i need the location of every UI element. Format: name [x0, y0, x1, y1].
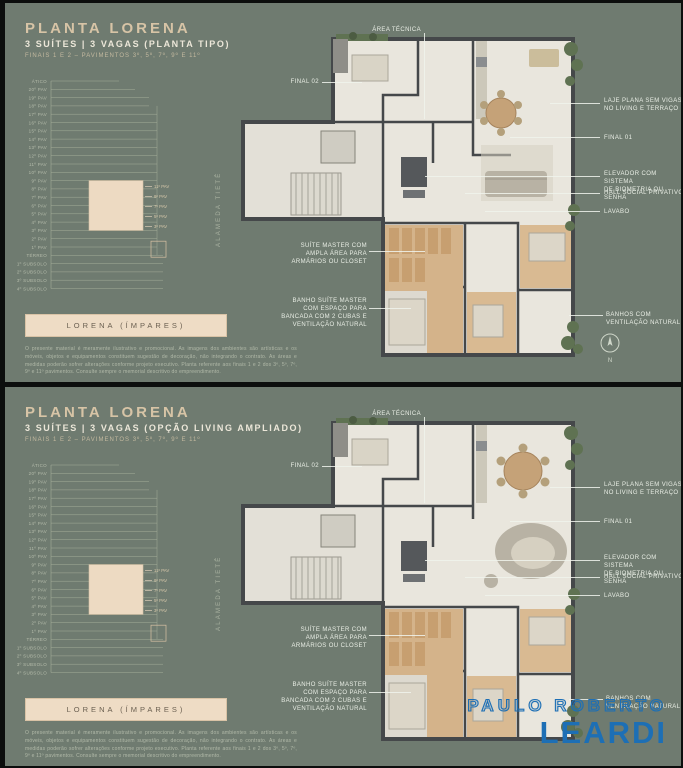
svg-text:16º PAV: 16º PAV [29, 504, 47, 509]
leader-final-02 [322, 82, 362, 83]
bed-master [389, 299, 425, 345]
svg-text:1º PAV: 1º PAV [31, 245, 47, 250]
svg-text:15º PAV: 15º PAV [29, 129, 47, 134]
svg-text:3º SUBSOLO: 3º SUBSOLO [17, 278, 47, 283]
svg-text:11º PAV: 11º PAV [154, 568, 169, 573]
svg-text:17º PAV: 17º PAV [29, 496, 47, 501]
svg-text:18º PAV: 18º PAV [29, 104, 47, 109]
svg-text:13º PAV: 13º PAV [29, 145, 47, 150]
callout-area-tecnica: ÁREA TÉCNICA [335, 26, 421, 34]
leader-laje [550, 103, 600, 104]
leader-final-02 [322, 466, 362, 467]
logo-line-leardi: LEARDI [467, 717, 667, 748]
svg-text:11º PAV: 11º PAV [29, 162, 47, 167]
elevator-shaft-common [321, 515, 355, 547]
kitchen-counter [476, 425, 487, 503]
callout-hall-social: HALL SOCIAL PRIVATIVO [604, 573, 683, 581]
callout-banhos-ventilacao: BANHOS COM VENTILAÇÃO NATURAL [606, 311, 683, 327]
leader-final-01 [510, 521, 600, 522]
svg-text:2º PAV: 2º PAV [31, 237, 47, 242]
svg-text:4º PAV: 4º PAV [31, 604, 47, 609]
logo-line-paulo-roberto: PAULO ROBERTO [467, 697, 667, 714]
bed-suite-3 [529, 617, 565, 645]
callout-lavabo: LAVABO [604, 592, 664, 600]
svg-text:ÁTICO: ÁTICO [32, 78, 47, 84]
leader-hall [465, 577, 600, 578]
svg-text:7º PAV: 7º PAV [31, 579, 47, 584]
leardi-logo: PAULO ROBERTO LEARDI [467, 697, 667, 748]
building-stack-diagram: ÁTICO20º PAV19º PAV18º PAV17º PAV16º PAV… [11, 459, 173, 687]
svg-text:5º PAV: 5º PAV [154, 214, 167, 219]
svg-text:9º PAV: 9º PAV [31, 178, 47, 183]
callout-banho-master: BANHO SUÍTE MASTER COM ESPAÇO PARA BANCA… [243, 681, 367, 713]
callout-elevador: ELEVADOR COM SISTEMA DE BIOMETRIA OU SEN… [604, 170, 683, 202]
svg-text:4º SUBSOLO: 4º SUBSOLO [17, 670, 47, 675]
leader-lavabo [485, 211, 600, 212]
svg-text:ÁTICO: ÁTICO [32, 462, 47, 468]
svg-text:3º PAV: 3º PAV [154, 224, 167, 229]
panel-planta-tipo: PLANTA LORENA 3 SUÍTES | 3 VAGAS (PLANTA… [0, 0, 683, 384]
leader-banho-master [369, 308, 411, 309]
svg-text:3º PAV: 3º PAV [154, 608, 167, 613]
svg-text:2º SUBSOLO: 2º SUBSOLO [17, 654, 47, 659]
svg-text:10º PAV: 10º PAV [29, 170, 47, 175]
leader-hall [465, 193, 600, 194]
svg-text:15º PAV: 15º PAV [29, 513, 47, 518]
leader-laje [550, 487, 600, 488]
callout-suite-master: SUÍTE MASTER COM AMPLA ÁREA PARA ARMÁRIO… [243, 626, 367, 650]
private-elevator [401, 157, 427, 187]
svg-text:10º PAV: 10º PAV [29, 554, 47, 559]
street-label: ALAMEDA TIETÊ [216, 515, 222, 631]
svg-text:11º PAV: 11º PAV [154, 184, 169, 189]
compass-icon: N [597, 331, 623, 365]
leader-area-tecnica [424, 417, 425, 503]
svg-text:1º PAV: 1º PAV [31, 629, 47, 634]
callout-suite-master: SUÍTE MASTER COM AMPLA ÁREA PARA ARMÁRIO… [243, 242, 367, 266]
callout-banho-master: BANHO SUÍTE MASTER COM ESPAÇO PARA BANCA… [243, 297, 367, 329]
leader-banhos [569, 315, 603, 316]
bed-final-02 [352, 55, 388, 81]
cooktop [476, 441, 487, 451]
callout-laje-plana: LAJE PLANA SEM VIGAS NO LIVING E TERRAÇO [604, 97, 683, 113]
svg-text:14º PAV: 14º PAV [29, 521, 47, 526]
svg-text:20º PAV: 20º PAV [29, 87, 47, 92]
svg-text:19º PAV: 19º PAV [29, 479, 47, 484]
unit-label-badge: LORENA (ÍMPARES) [25, 314, 227, 337]
leader-lavabo [485, 595, 600, 596]
svg-text:TÉRREO: TÉRREO [26, 636, 47, 642]
plan-floors-note: FINAIS 1 E 2 – PAVIMENTOS 3º, 5º, 7º, 9º… [25, 437, 201, 443]
svg-text:9º PAV: 9º PAV [154, 194, 167, 199]
svg-text:5º PAV: 5º PAV [31, 596, 47, 601]
callout-laje-plana: LAJE PLANA SEM VIGAS NO LIVING E TERRAÇO [604, 481, 683, 497]
leader-elevador [425, 560, 600, 561]
svg-text:12º PAV: 12º PAV [29, 538, 47, 543]
bed-final-02 [352, 439, 388, 465]
page-title: PLANTA LORENA [25, 20, 191, 37]
svg-text:3º PAV: 3º PAV [31, 612, 47, 617]
svg-text:17º PAV: 17º PAV [29, 112, 47, 117]
stairs [291, 557, 341, 599]
callout-final-02: FINAL 02 [245, 462, 319, 470]
callout-elevador: ELEVADOR COM SISTEMA DE BIOMETRIA OU SEN… [604, 554, 683, 586]
svg-text:7º PAV: 7º PAV [31, 195, 47, 200]
unit-label-badge: LORENA (ÍMPARES) [25, 698, 227, 721]
technical-roof [333, 39, 348, 73]
leader-suite-master [369, 635, 425, 636]
leader-area-tecnica [424, 33, 425, 119]
svg-text:9º PAV: 9º PAV [31, 562, 47, 567]
svg-text:1º SUBSOLO: 1º SUBSOLO [17, 261, 47, 266]
leader-suite-master [369, 251, 425, 252]
elevator-hall [403, 574, 425, 582]
svg-text:8º PAV: 8º PAV [31, 571, 47, 576]
svg-text:7º PAV: 7º PAV [154, 204, 167, 209]
bed-suite-3 [529, 233, 565, 261]
plan-subtitle: 3 SUÍTES | 3 VAGAS (PLANTA TIPO) [25, 39, 230, 49]
stairs [291, 173, 341, 215]
leader-banho-master [369, 692, 411, 693]
svg-text:6º PAV: 6º PAV [31, 203, 47, 208]
callout-final-01: FINAL 01 [604, 134, 664, 142]
callout-area-tecnica: ÁREA TÉCNICA [335, 410, 421, 418]
svg-text:13º PAV: 13º PAV [29, 529, 47, 534]
svg-text:5º PAV: 5º PAV [31, 212, 47, 217]
svg-text:1º SUBSOLO: 1º SUBSOLO [17, 645, 47, 650]
svg-text:TÉRREO: TÉRREO [26, 252, 47, 258]
svg-text:8º PAV: 8º PAV [31, 187, 47, 192]
svg-text:20º PAV: 20º PAV [29, 471, 47, 476]
street-label: ALAMEDA TIETÊ [216, 131, 222, 247]
elevator-hall [403, 190, 425, 198]
svg-text:3º PAV: 3º PAV [31, 228, 47, 233]
svg-text:7º PAV: 7º PAV [154, 588, 167, 593]
svg-text:14º PAV: 14º PAV [29, 137, 47, 142]
callout-hall-social: HALL SOCIAL PRIVATIVO [604, 189, 683, 197]
terrace-table [529, 49, 559, 67]
callout-lavabo: LAVABO [604, 208, 664, 216]
svg-text:18º PAV: 18º PAV [29, 488, 47, 493]
callout-final-01: FINAL 01 [604, 518, 664, 526]
bed-master [389, 683, 425, 729]
leader-elevador [425, 176, 600, 177]
page-title: PLANTA LORENA [25, 404, 191, 421]
bed-suite-2 [473, 305, 503, 337]
svg-text:19º PAV: 19º PAV [29, 95, 47, 100]
svg-text:3º SUBSOLO: 3º SUBSOLO [17, 662, 47, 667]
technical-roof [333, 423, 348, 457]
svg-text:12º PAV: 12º PAV [29, 154, 47, 159]
svg-text:16º PAV: 16º PAV [29, 120, 47, 125]
svg-text:11º PAV: 11º PAV [29, 546, 47, 551]
svg-text:2º SUBSOLO: 2º SUBSOLO [17, 270, 47, 275]
cooktop [476, 57, 487, 67]
leader-final-01 [510, 137, 600, 138]
svg-text:4º SUBSOLO: 4º SUBSOLO [17, 286, 47, 291]
callout-final-02: FINAL 02 [245, 78, 319, 86]
svg-text:9º PAV: 9º PAV [154, 578, 167, 583]
svg-text:4º PAV: 4º PAV [31, 220, 47, 225]
panel-living-ampliado: PLANTA LORENA 3 SUÍTES | 3 VAGAS (OPÇÃO … [0, 384, 683, 768]
building-stack-diagram: ÁTICO20º PAV19º PAV18º PAV17º PAV16º PAV… [11, 75, 173, 303]
compass-north-label: N [608, 358, 612, 364]
svg-text:5º PAV: 5º PAV [154, 598, 167, 603]
plan-floors-note: FINAIS 1 E 2 – PAVIMENTOS 3º, 5º, 7º, 9º… [25, 53, 201, 59]
svg-text:2º PAV: 2º PAV [31, 621, 47, 626]
private-elevator [401, 541, 427, 571]
elevator-shaft-common [321, 131, 355, 163]
svg-text:6º PAV: 6º PAV [31, 587, 47, 592]
